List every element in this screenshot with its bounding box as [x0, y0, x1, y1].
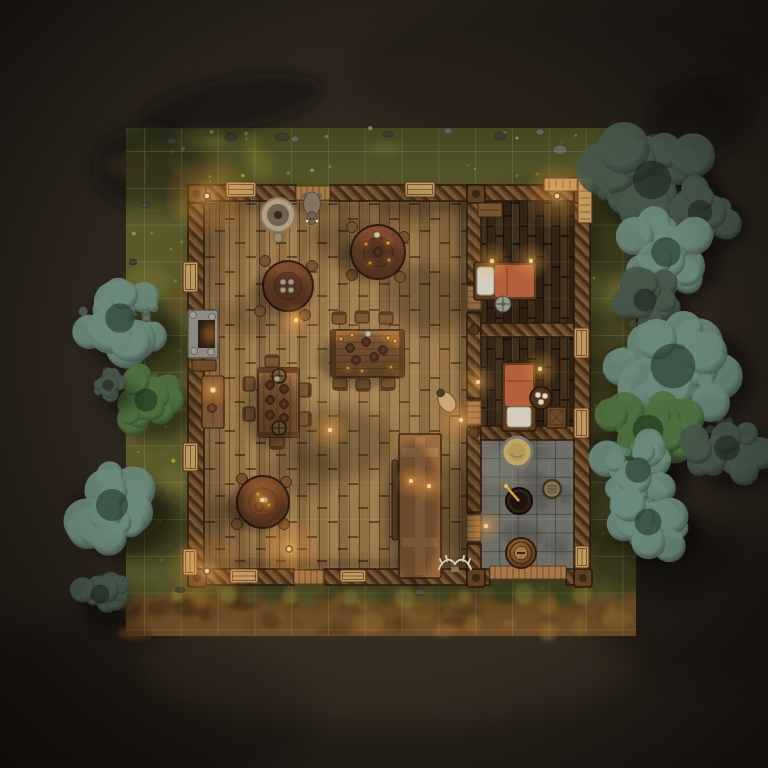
vignette — [0, 0, 768, 768]
vignette-layer — [0, 0, 768, 768]
battlemap-svg — [0, 0, 768, 768]
battlemap-image — [0, 0, 768, 768]
